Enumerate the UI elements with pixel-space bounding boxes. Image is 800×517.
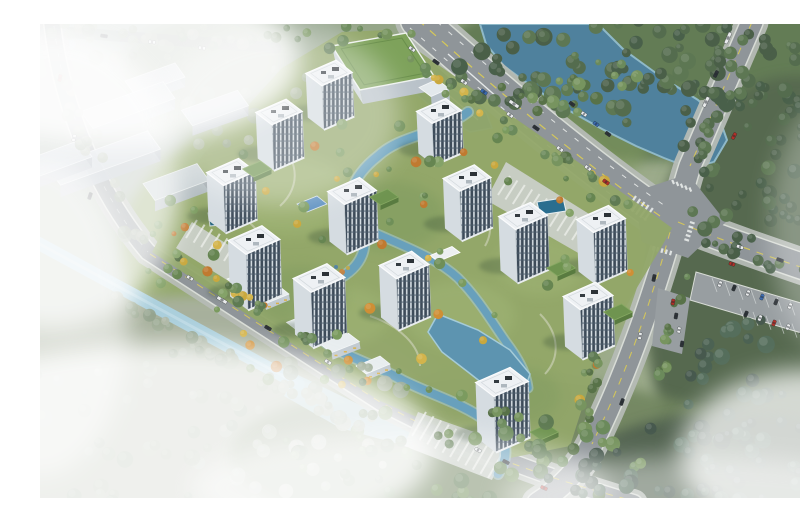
rooftop-unit xyxy=(593,217,598,220)
rooftop-unit xyxy=(442,105,449,109)
shop-awning xyxy=(284,299,287,301)
rooftop-unit xyxy=(470,172,477,176)
rooftop-panel xyxy=(466,180,472,184)
shop-awning xyxy=(369,376,372,378)
rooftop-unit xyxy=(322,272,329,276)
scene-root xyxy=(40,16,800,501)
rooftop-unit xyxy=(505,376,512,380)
shop-awning xyxy=(344,351,347,353)
rooftop-unit xyxy=(591,290,598,294)
rooftop-unit xyxy=(515,214,520,217)
playground-element xyxy=(334,265,338,269)
rooftop-unit xyxy=(257,234,264,238)
shop-awning xyxy=(276,303,279,305)
rooftop-unit xyxy=(431,109,436,112)
shop-awning xyxy=(335,355,338,357)
rooftop-panel xyxy=(318,280,324,284)
rooftop-unit xyxy=(246,238,251,241)
playground-element xyxy=(346,266,350,270)
rooftop-panel xyxy=(253,242,259,246)
rooftop-unit xyxy=(396,263,401,266)
rooftop-unit xyxy=(526,210,533,214)
render-canvas xyxy=(40,16,800,501)
rooftop-unit xyxy=(580,294,585,297)
rooftop-unit xyxy=(459,176,464,179)
shop-awning xyxy=(353,347,356,349)
rooftop-panel xyxy=(501,384,507,388)
rooftop-unit xyxy=(604,213,611,217)
rooftop-panel xyxy=(587,298,593,302)
shop-awning xyxy=(385,369,388,371)
rooftop-unit xyxy=(407,259,414,263)
rooftop-panel xyxy=(438,113,444,117)
rooftop-panel xyxy=(403,267,409,271)
fog-patch xyxy=(160,26,400,206)
shop-awning xyxy=(268,306,271,308)
aerial-masterplan-render: Aerial bird's-eye architectural renderin… xyxy=(40,16,800,501)
rooftop-panel xyxy=(522,218,528,222)
shop-awning xyxy=(377,373,380,375)
rooftop-panel xyxy=(351,193,357,197)
rooftop-unit xyxy=(494,380,499,383)
rooftop-panel xyxy=(600,221,606,225)
rooftop-unit xyxy=(311,276,316,279)
